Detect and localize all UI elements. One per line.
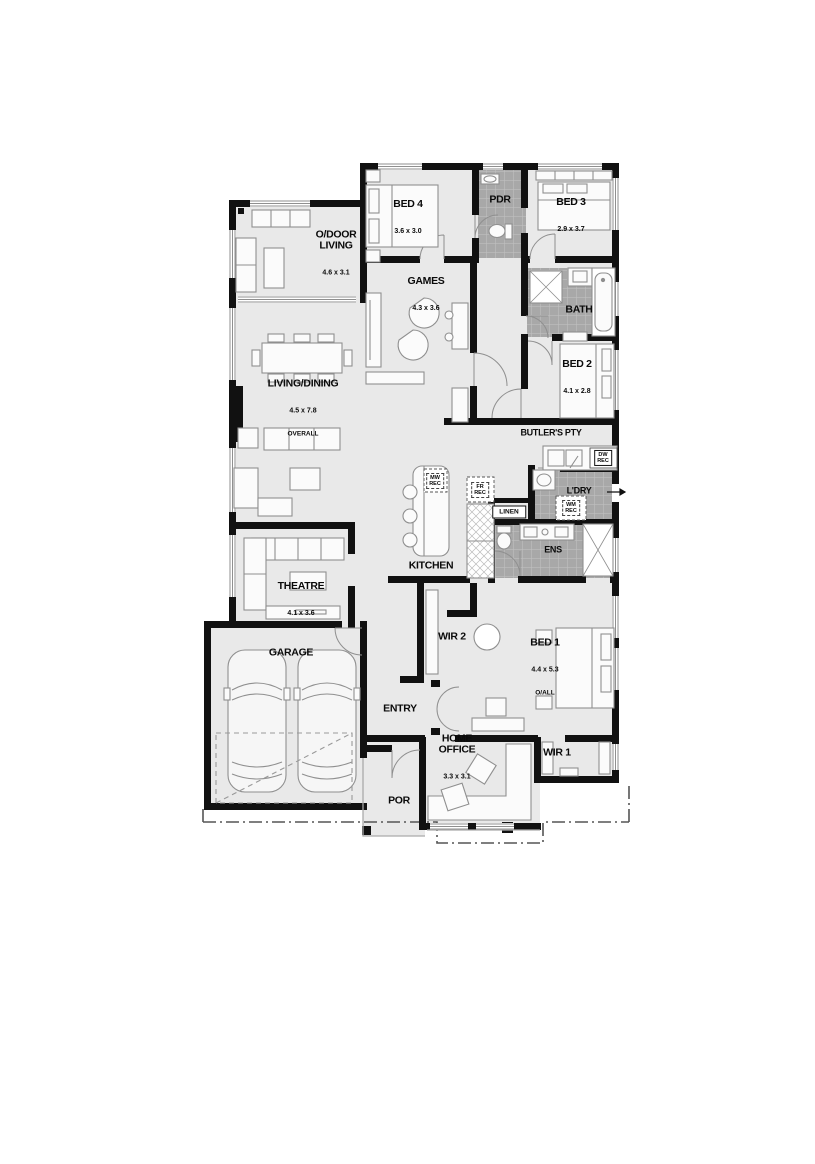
ens-shower-icon <box>583 524 613 576</box>
mw-rec-label: MW REC <box>426 473 444 489</box>
bed2-bed-icon <box>560 332 614 418</box>
room-label-linen: LINEN <box>492 506 526 519</box>
dw-rec-label: DW REC <box>594 450 612 466</box>
bathtub-icon <box>592 268 615 336</box>
laundry-trough-icon <box>533 470 555 490</box>
floor-plan: BED 4 3.6 x 3.0 PDR BED 3 2.9 x 3.7 O/DO… <box>0 0 815 1164</box>
floor-plan-canvas <box>0 0 815 1164</box>
wm-rec-label: WM REC <box>562 500 580 516</box>
pantry-shelves-icon <box>467 504 494 578</box>
ens-toilet-icon <box>497 526 511 549</box>
ens-vanity-icon <box>520 524 574 540</box>
pdr-toilet-icon <box>489 224 512 239</box>
bath-vanity-icon <box>568 268 592 286</box>
bed3-bed-icon <box>536 171 612 230</box>
pdr-basin-icon <box>481 174 499 184</box>
bath-shower-icon <box>530 271 562 303</box>
fr-rec-label: FR REC <box>471 482 489 498</box>
